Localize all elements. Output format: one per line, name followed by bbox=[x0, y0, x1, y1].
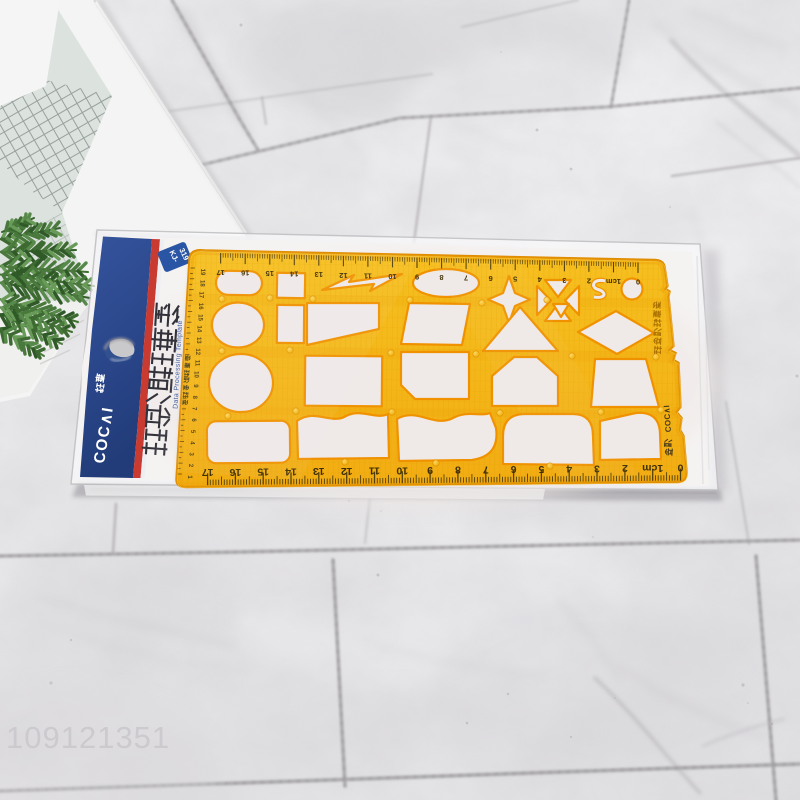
svg-text:13: 13 bbox=[313, 465, 325, 477]
svg-text:3: 3 bbox=[562, 276, 566, 285]
svg-text:11: 11 bbox=[369, 465, 380, 477]
svg-text:2: 2 bbox=[587, 276, 591, 285]
svg-text:7: 7 bbox=[483, 464, 489, 476]
svg-text:6: 6 bbox=[511, 463, 517, 475]
svg-text:8: 8 bbox=[455, 464, 461, 476]
svg-text:1cm: 1cm bbox=[606, 277, 621, 286]
svg-text:109121351: 109121351 bbox=[6, 720, 170, 755]
svg-text:10: 10 bbox=[396, 464, 408, 476]
svg-text:9: 9 bbox=[415, 273, 419, 282]
svg-text:5: 5 bbox=[538, 463, 544, 475]
svg-text:9: 9 bbox=[427, 464, 433, 476]
svg-text:1cm: 1cm bbox=[642, 462, 663, 474]
svg-text:0: 0 bbox=[677, 462, 683, 474]
svg-text:COC∧I: COC∧I bbox=[662, 405, 673, 433]
svg-text:0: 0 bbox=[636, 277, 640, 286]
svg-text:12: 12 bbox=[341, 465, 353, 477]
